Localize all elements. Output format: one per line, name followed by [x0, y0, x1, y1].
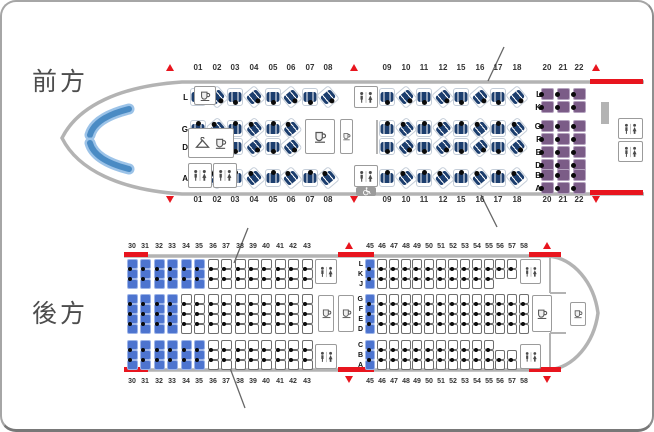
galley: [532, 295, 552, 332]
seat-18A[interactable]: [505, 166, 529, 190]
headrest-dot: [462, 302, 466, 306]
seat-column-number-top-01: 01: [189, 63, 207, 73]
headrest-dot: [414, 322, 418, 326]
seat-21F[interactable]: [557, 133, 570, 145]
seat-22K[interactable]: [573, 101, 586, 113]
headrest-dot: [367, 322, 371, 326]
business-seat-icon: [509, 138, 525, 154]
seat-11L[interactable]: [416, 88, 432, 106]
exit-triangle-up: [166, 64, 174, 71]
galley: [338, 295, 354, 332]
seat-column-number-top-02: 02: [208, 63, 226, 73]
lavatory-icon: [523, 266, 539, 278]
headrest-dot: [271, 149, 276, 154]
seat-column-number-top-08: 08: [319, 63, 337, 73]
seat-column-number-bottom-16: 16: [471, 195, 489, 205]
headrest-dot: [426, 322, 430, 326]
exit-triangle-down: [592, 196, 600, 203]
headrest-dot: [426, 302, 430, 306]
lavatory-icon: [318, 266, 335, 278]
seat-09A[interactable]: [379, 169, 395, 187]
headrest-dot: [379, 302, 383, 306]
lavatory: [618, 118, 643, 139]
headrest-dot: [254, 98, 261, 105]
seat-column-number-bottom-09: 09: [378, 195, 396, 205]
row-letter-D: D: [527, 161, 541, 170]
seat-05A[interactable]: [265, 169, 281, 187]
seat-20K[interactable]: [541, 101, 554, 113]
seat-12D[interactable]: [431, 135, 454, 158]
lavatory-icon: [216, 169, 234, 182]
galley: [194, 86, 216, 105]
headrest-dot: [450, 358, 454, 362]
seat-22L[interactable]: [573, 88, 586, 100]
row-letter-A: A: [174, 174, 188, 183]
headrest-dot: [474, 267, 478, 271]
headrest-dot: [367, 302, 371, 306]
headrest-dot: [509, 267, 513, 271]
headrest-dot: [571, 150, 576, 155]
headrest-dot: [480, 98, 487, 105]
seat-21B[interactable]: [557, 169, 570, 181]
headrest-dot: [379, 312, 383, 316]
headrest-dot: [426, 312, 430, 316]
headrest-dot: [496, 121, 501, 126]
exit-red-bar: [590, 79, 643, 84]
headrest-dot: [474, 302, 478, 306]
row-letter-E: E: [527, 148, 541, 157]
headrest-dot: [379, 277, 383, 281]
seat-03L[interactable]: [227, 88, 243, 106]
exit-red-bar: [590, 190, 643, 195]
headrest-dot: [443, 98, 450, 105]
headrest-dot: [385, 100, 390, 105]
seat-16D[interactable]: [468, 135, 491, 158]
seat-20L[interactable]: [541, 88, 554, 100]
row-letter-A: A: [349, 361, 363, 370]
headrest-dot: [403, 358, 407, 362]
seat-column-number-top-15: 15: [452, 63, 470, 73]
lavatory-icon: [622, 123, 639, 135]
seat-08A[interactable]: [316, 166, 340, 190]
headrest-dot: [486, 312, 490, 316]
business-seat-icon: [398, 138, 414, 154]
headrest-dot: [496, 170, 501, 175]
seat-column-number-top-18: 18: [508, 63, 526, 73]
seat-17L[interactable]: [490, 88, 506, 106]
headrest-dot: [379, 267, 383, 271]
seat-column-number-top-03: 03: [226, 63, 244, 73]
headrest-dot: [385, 121, 390, 126]
headrest-dot: [462, 358, 466, 362]
seat-06A[interactable]: [279, 166, 303, 190]
headrest-dot: [450, 322, 454, 326]
seat-04L[interactable]: [242, 85, 266, 109]
tail-galley: [570, 302, 586, 326]
seat-column-number-bottom-06: 06: [282, 195, 300, 205]
row-letter-L: L: [527, 90, 541, 99]
seat-column-number-bottom-04: 04: [245, 195, 263, 205]
seat-column-number-bottom-10: 10: [397, 195, 415, 205]
headrest-dot: [497, 358, 501, 362]
seat-15A[interactable]: [453, 169, 469, 187]
seat-11A[interactable]: [416, 169, 432, 187]
seat-column-number-bottom-11: 11: [415, 195, 433, 205]
wheelchair-icon: [362, 187, 371, 196]
seat-column-number-bottom-15: 15: [452, 195, 470, 205]
headrest-dot: [459, 149, 464, 154]
row-letter-B: B: [349, 351, 363, 360]
seat-20E[interactable]: [541, 146, 554, 158]
seat-column-number-top-43: 43: [298, 242, 316, 252]
headrest-dot: [414, 312, 418, 316]
galley-cup-icon: [573, 309, 583, 319]
headrest-dot: [497, 322, 501, 326]
seat-column-number-bottom-07: 07: [301, 195, 319, 205]
seat-09G[interactable]: [379, 120, 395, 137]
galley-cup-icon: [199, 90, 211, 102]
headrest-dot: [486, 358, 490, 362]
seat-column-number-bottom-43: 43: [298, 377, 316, 387]
headrest-dot: [271, 170, 276, 175]
seat-column-number-top-11: 11: [415, 63, 433, 73]
seat-16A[interactable]: [468, 166, 492, 190]
lavatory: [520, 344, 541, 369]
headrest-dot: [555, 150, 560, 155]
exit-red-bar: [529, 252, 561, 257]
headrest-dot: [497, 312, 501, 316]
seat-22G[interactable]: [573, 120, 586, 132]
seat-08L[interactable]: [316, 85, 340, 109]
headrest-dot: [555, 186, 560, 191]
headrest-dot: [308, 170, 313, 175]
seat-06D[interactable]: [279, 135, 302, 158]
headrest-dot: [391, 322, 395, 326]
seat-map-overlay: 0102030405060708010203040506070809101112…: [2, 2, 654, 432]
headrest-dot: [403, 277, 407, 281]
headrest-dot: [414, 267, 418, 271]
headrest-dot: [521, 322, 525, 326]
headrest-dot: [509, 358, 513, 362]
seat-column-number-top-58: 58: [515, 242, 533, 252]
headrest-dot: [291, 98, 298, 105]
seat-column-number-bottom-02: 02: [208, 195, 226, 205]
business-seat-icon: [435, 138, 451, 154]
seat-column-number-bottom-08: 08: [319, 195, 337, 205]
headrest-dot: [406, 98, 413, 105]
wardrobe-galley: [188, 128, 234, 158]
seat-11G[interactable]: [416, 120, 432, 137]
business-seat-icon: [472, 138, 488, 154]
galley: [340, 119, 353, 154]
headrest-dot: [459, 100, 464, 105]
headrest-dot: [521, 312, 525, 316]
headrest-dot: [403, 312, 407, 316]
headrest-dot: [486, 348, 490, 352]
lavatory: [618, 141, 643, 162]
headrest-dot: [571, 186, 576, 191]
headrest-dot: [403, 267, 407, 271]
headrest-dot: [438, 348, 442, 352]
coat-hanger-icon: [195, 137, 210, 150]
row-letter-G: G: [527, 122, 541, 131]
seat-10A[interactable]: [394, 166, 418, 190]
seat-04A[interactable]: [242, 166, 266, 190]
seat-21A[interactable]: [557, 182, 570, 194]
seat-20F[interactable]: [541, 133, 554, 145]
headrest-dot: [426, 267, 430, 271]
seat-15D[interactable]: [453, 138, 469, 155]
headrest-dot: [391, 348, 395, 352]
headrest-dot: [379, 348, 383, 352]
headrest-dot: [486, 302, 490, 306]
seat-column-number-bottom-12: 12: [434, 195, 452, 205]
headrest-dot: [391, 302, 395, 306]
lavatory: [354, 86, 378, 108]
headrest-dot: [438, 267, 442, 271]
lavatory-icon: [622, 146, 639, 158]
galley-cup-icon: [536, 308, 548, 320]
headrest-dot: [414, 348, 418, 352]
seat-21E[interactable]: [557, 146, 570, 158]
headrest-dot: [367, 267, 371, 271]
headrest-dot: [308, 100, 313, 105]
seat-11D[interactable]: [416, 138, 432, 155]
headrest-dot: [555, 105, 560, 110]
row-letter-A: A: [527, 184, 541, 193]
exit-triangle-down: [543, 376, 551, 383]
headrest-dot: [486, 267, 490, 271]
headrest-dot: [462, 277, 466, 281]
headrest-dot: [509, 302, 513, 306]
headrest-dot: [555, 92, 560, 97]
headrest-dot: [555, 137, 560, 142]
seat-22A[interactable]: [573, 182, 586, 194]
seat-18D[interactable]: [505, 135, 528, 158]
headrest-dot: [385, 149, 390, 154]
seat-09D[interactable]: [379, 138, 395, 155]
lavatory-icon: [318, 351, 335, 363]
headrest-dot: [486, 277, 490, 281]
headrest-dot: [385, 170, 390, 175]
headrest-dot: [571, 92, 576, 97]
seat-10D[interactable]: [394, 135, 417, 158]
row-letter-B: B: [527, 171, 541, 180]
headrest-dot: [414, 302, 418, 306]
exit-triangle-down: [166, 196, 174, 203]
headrest-dot: [509, 322, 513, 326]
headrest-dot: [367, 312, 371, 316]
seat-07A[interactable]: [302, 169, 318, 187]
seat-07L[interactable]: [302, 88, 318, 106]
headrest-dot: [474, 312, 478, 316]
headrest-dot: [474, 348, 478, 352]
seat-12A[interactable]: [431, 166, 455, 190]
business-seat-icon: [246, 138, 262, 154]
lavatory-icon: [191, 169, 209, 182]
headrest-dot: [571, 173, 576, 178]
lavatory: [315, 344, 337, 369]
headrest-dot: [438, 302, 442, 306]
seat-column-number-top-05: 05: [264, 63, 282, 73]
exit-triangle-down: [345, 376, 353, 383]
lavatory: [188, 163, 212, 188]
headrest-dot: [517, 98, 524, 105]
galley: [318, 295, 334, 332]
row-letter-K: K: [349, 270, 363, 279]
seat-20A[interactable]: [541, 182, 554, 194]
seat-21G[interactable]: [557, 120, 570, 132]
seat-22E[interactable]: [573, 146, 586, 158]
headrest-dot: [462, 348, 466, 352]
headrest-dot: [271, 121, 276, 126]
headrest-dot: [450, 302, 454, 306]
headrest-dot: [450, 312, 454, 316]
galley-cup-icon: [342, 132, 351, 141]
lavatory-icon: [523, 351, 539, 363]
seat-column-number-top-06: 06: [282, 63, 300, 73]
lavatory: [520, 259, 541, 284]
headrest-dot: [555, 163, 560, 168]
exit-triangle-up: [345, 242, 353, 249]
seat-column-number-top-17: 17: [489, 63, 507, 73]
seat-20B[interactable]: [541, 169, 554, 181]
lavatory-icon: [357, 91, 375, 104]
seat-column-number-bottom-22: 22: [570, 195, 588, 205]
seat-06L[interactable]: [279, 85, 303, 109]
row-letter-L: L: [349, 260, 363, 269]
headrest-dot: [422, 170, 427, 175]
galley-cup-icon: [321, 308, 332, 319]
business-seat-icon: [283, 138, 299, 154]
headrest-dot: [217, 98, 224, 105]
headrest-dot: [271, 100, 276, 105]
row-letter-C: C: [349, 341, 363, 350]
headrest-dot: [450, 267, 454, 271]
seat-17G[interactable]: [490, 120, 506, 137]
seat-column-number-top-22: 22: [570, 63, 588, 73]
seat-16L[interactable]: [468, 85, 492, 109]
headrest-dot: [438, 322, 442, 326]
exit-red-bar: [338, 252, 374, 257]
lavatory: [213, 163, 237, 188]
seat-column-number-top-10: 10: [397, 63, 415, 73]
headrest-dot: [414, 277, 418, 281]
seat-09L[interactable]: [379, 88, 395, 106]
seat-column-number-bottom-03: 03: [226, 195, 244, 205]
headrest-dot: [462, 312, 466, 316]
headrest-dot: [426, 348, 430, 352]
seat-22F[interactable]: [573, 133, 586, 145]
headrest-dot: [414, 358, 418, 362]
headrest-dot: [459, 121, 464, 126]
seat-15L[interactable]: [453, 88, 469, 106]
galley-cup-icon: [313, 130, 327, 144]
seat-15G[interactable]: [453, 120, 469, 137]
headrest-dot: [403, 302, 407, 306]
partition: [601, 102, 609, 124]
headrest-dot: [379, 322, 383, 326]
headrest-dot: [462, 267, 466, 271]
seat-column-number-top-09: 09: [378, 63, 396, 73]
seat-05D[interactable]: [265, 138, 281, 155]
headrest-dot: [571, 105, 576, 110]
headrest-dot: [438, 312, 442, 316]
seat-21K[interactable]: [557, 101, 570, 113]
seat-20G[interactable]: [541, 120, 554, 132]
headrest-dot: [438, 358, 442, 362]
headrest-dot: [422, 149, 427, 154]
headrest-dot: [555, 124, 560, 129]
headrest-dot: [367, 348, 371, 352]
headrest-dot: [509, 312, 513, 316]
headrest-dot: [403, 348, 407, 352]
headrest-dot: [474, 358, 478, 362]
headrest-dot: [233, 100, 238, 105]
seat-17A[interactable]: [490, 169, 506, 187]
headrest-dot: [571, 163, 576, 168]
headrest-dot: [391, 358, 395, 362]
row-letter-F: F: [527, 135, 541, 144]
seat-18L[interactable]: [505, 85, 529, 109]
headrest-dot: [328, 98, 335, 105]
headrest-dot: [462, 322, 466, 326]
headrest-dot: [196, 121, 201, 126]
seat-17D[interactable]: [490, 138, 506, 155]
headrest-dot: [379, 358, 383, 362]
seat-05L[interactable]: [265, 88, 281, 106]
seat-column-number-top-12: 12: [434, 63, 452, 73]
headrest-dot: [486, 322, 490, 326]
headrest-dot: [571, 137, 576, 142]
lavatory-icon: [357, 170, 375, 183]
headrest-dot: [496, 149, 501, 154]
headrest-dot: [474, 322, 478, 326]
headrest-dot: [497, 302, 501, 306]
aircraft-seat-map: 前方 後方 0102030405060708010203040506070809…: [0, 0, 654, 432]
headrest-dot: [422, 100, 427, 105]
headrest-dot: [496, 100, 501, 105]
headrest-dot: [422, 121, 427, 126]
headrest-dot: [438, 277, 442, 281]
wheelchair-access-tab: [356, 187, 376, 196]
seat-10L[interactable]: [394, 85, 418, 109]
seat-12L[interactable]: [431, 85, 455, 109]
exit-red-bar: [124, 252, 148, 257]
exit-triangle-up: [543, 242, 551, 249]
headrest-dot: [233, 121, 238, 126]
galley-cup-icon: [214, 137, 227, 150]
headrest-dot: [403, 322, 407, 326]
seat-column-number-top-16: 16: [471, 63, 489, 73]
seat-04D[interactable]: [242, 135, 265, 158]
headrest-dot: [426, 277, 430, 281]
exit-triangle-up: [592, 64, 600, 71]
headrest-dot: [391, 267, 395, 271]
seat-05G[interactable]: [265, 120, 281, 137]
headrest-dot: [474, 277, 478, 281]
seat-22B[interactable]: [573, 169, 586, 181]
headrest-dot: [571, 124, 576, 129]
headrest-dot: [367, 358, 371, 362]
galley: [305, 119, 335, 154]
seat-column-number-top-07: 07: [301, 63, 319, 73]
headrest-dot: [391, 312, 395, 316]
headrest-dot: [450, 348, 454, 352]
exit-triangle-up: [350, 64, 358, 71]
headrest-dot: [391, 277, 395, 281]
seat-21L[interactable]: [557, 88, 570, 100]
